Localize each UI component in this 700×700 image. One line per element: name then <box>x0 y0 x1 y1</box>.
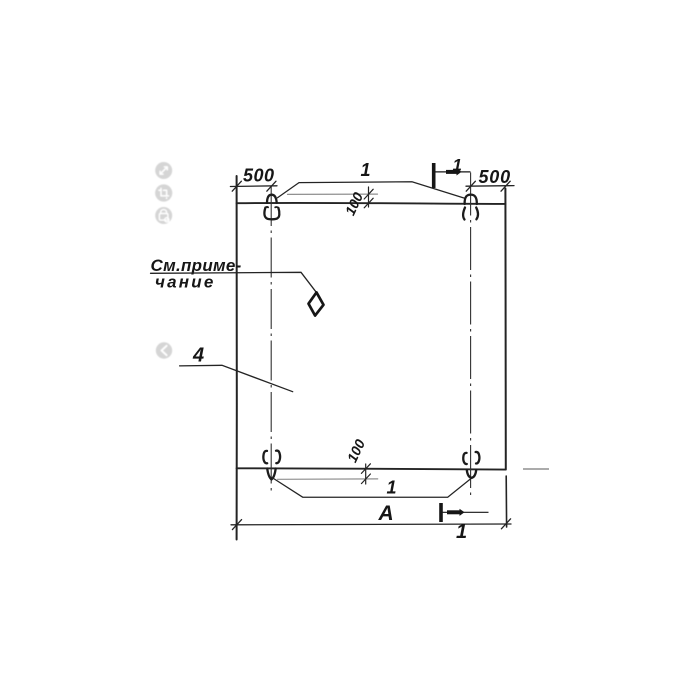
svg-text:1: 1 <box>361 160 371 180</box>
svg-text:1: 1 <box>387 478 397 498</box>
svg-text:1: 1 <box>453 156 462 175</box>
svg-text:1: 1 <box>456 521 467 543</box>
svg-text:4: 4 <box>192 345 204 367</box>
svg-text:500: 500 <box>243 165 275 185</box>
svg-text:А: А <box>378 502 394 525</box>
svg-text:чание: чание <box>155 273 215 292</box>
svg-text:500: 500 <box>479 167 511 187</box>
